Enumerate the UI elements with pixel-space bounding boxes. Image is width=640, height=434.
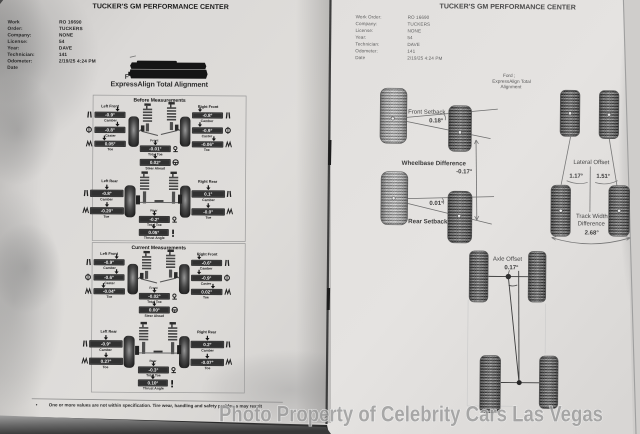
svg-text:DAVE: DAVE: [59, 45, 72, 50]
svg-text:2/19/25 4:24 PM: 2/19/25 4:24 PM: [407, 56, 442, 61]
svg-text:NONE: NONE: [407, 28, 421, 33]
svg-text:0.10°: 0.10°: [147, 381, 158, 386]
svg-text:TUCKER'S GM PERFORMANCE CENTER: TUCKER'S GM PERFORMANCE CENTER: [440, 3, 576, 11]
svg-text:Toe: Toe: [107, 295, 113, 299]
svg-text:2.68°: 2.68°: [585, 230, 600, 236]
svg-text:Year:: Year:: [7, 45, 20, 50]
svg-text:DAVE: DAVE: [407, 42, 420, 47]
svg-text:-0.07°: -0.07°: [201, 360, 214, 365]
svg-text:Company:: Company:: [7, 32, 31, 37]
svg-text:Toe: Toe: [205, 216, 211, 220]
svg-text:Caster: Caster: [105, 134, 116, 138]
svg-text:Photo Property of Celebrity Ca: Photo Property of Celebrity Cars Las Veg…: [219, 402, 603, 427]
svg-text:Before Measurements: Before Measurements: [133, 98, 185, 104]
svg-text:Left Rear: Left Rear: [101, 179, 118, 183]
svg-text:-0.6°: -0.6°: [104, 275, 114, 280]
svg-text:RO 16690: RO 16690: [59, 19, 82, 24]
svg-text:-0.6°: -0.6°: [202, 260, 212, 265]
svg-text:Wheelbase Difference: Wheelbase Difference: [402, 160, 467, 168]
svg-text:Toe: Toe: [204, 148, 210, 152]
svg-text:-0.9°: -0.9°: [105, 112, 115, 117]
svg-text:0.05°: 0.05°: [148, 230, 159, 235]
svg-text:Toe: Toe: [103, 365, 109, 369]
svg-text:-0.04°: -0.04°: [103, 289, 116, 294]
svg-text:Rear Setback: Rear Setback: [408, 218, 448, 225]
svg-text:Left Rear: Left Rear: [100, 330, 117, 334]
svg-text:54: 54: [59, 39, 65, 44]
svg-text:54: 54: [407, 35, 413, 40]
svg-text:License:: License:: [7, 39, 28, 44]
svg-text:Toe: Toe: [205, 366, 211, 370]
svg-text:Thrust Angle: Thrust Angle: [144, 236, 165, 240]
svg-text:0.27°: 0.27°: [101, 359, 112, 364]
svg-text:Toe: Toe: [107, 147, 113, 151]
svg-text:Company:: Company:: [356, 21, 378, 26]
svg-text:Work Order:: Work Order:: [356, 14, 382, 19]
svg-text:Camber: Camber: [201, 349, 214, 353]
svg-text:Steer Ahead: Steer Ahead: [144, 314, 164, 318]
svg-text:TUCKERS: TUCKERS: [59, 26, 83, 31]
svg-text:Left Front: Left Front: [101, 104, 119, 108]
svg-text:Camber: Camber: [103, 266, 116, 270]
svg-text:Current Measurements: Current Measurements: [131, 245, 186, 251]
svg-text:-0.02°: -0.02°: [148, 294, 161, 299]
svg-text:Camber: Camber: [100, 197, 113, 201]
svg-text:-0.8°: -0.8°: [105, 127, 115, 132]
svg-text:0.18°: 0.18°: [429, 118, 444, 124]
svg-text:Front Setback: Front Setback: [408, 110, 446, 116]
svg-text:Toe: Toe: [203, 295, 209, 299]
svg-text:-0.20°: -0.20°: [101, 208, 114, 213]
svg-text:TUCKER'S GM PERFORMANCE CENTER: TUCKER'S GM PERFORMANCE CENTER: [93, 3, 229, 11]
svg-text:Order:: Order:: [8, 26, 24, 31]
svg-text:Camber: Camber: [99, 348, 112, 352]
svg-text:Lateral Offset: Lateral Offset: [573, 160, 609, 166]
svg-text:Difference: Difference: [578, 221, 606, 227]
svg-text:Technician:: Technician:: [7, 52, 35, 57]
svg-text:Camber: Camber: [201, 119, 214, 123]
svg-text:Right Rear: Right Rear: [198, 180, 218, 184]
svg-text:Date: Date: [7, 65, 18, 70]
svg-text:Alignment: Alignment: [501, 84, 523, 89]
svg-text:Left Front: Left Front: [100, 252, 118, 256]
svg-text:0.02°: 0.02°: [150, 160, 161, 165]
svg-text:Caster: Caster: [201, 282, 212, 286]
svg-text:Work: Work: [8, 19, 21, 24]
svg-text:0.17°: 0.17°: [504, 265, 519, 271]
svg-text:141: 141: [407, 49, 415, 54]
svg-text:-0.9°: -0.9°: [203, 128, 213, 133]
svg-text:Camber: Camber: [104, 118, 117, 122]
svg-text:-0.17°: -0.17°: [456, 169, 473, 175]
svg-text:-0.3°: -0.3°: [149, 368, 159, 373]
svg-text:Track Width: Track Width: [576, 214, 608, 220]
svg-text:0.05°: 0.05°: [105, 141, 116, 146]
svg-text:Odometer:: Odometer:: [7, 58, 32, 63]
svg-text:0.02°: 0.02°: [201, 289, 212, 294]
svg-text:ExpressAlign Total: ExpressAlign Total: [492, 79, 531, 84]
svg-text:-0.2°: -0.2°: [149, 217, 159, 222]
svg-text:0.2°: 0.2°: [203, 342, 211, 347]
svg-text:Year:: Year:: [355, 35, 366, 40]
svg-text:2/19/25 4:24 PM: 2/19/25 4:24 PM: [59, 58, 96, 63]
svg-text:License:: License:: [355, 28, 373, 33]
svg-text:Camber: Camber: [202, 198, 215, 202]
svg-text:-0.8°: -0.8°: [102, 191, 112, 196]
svg-text:-0.9°: -0.9°: [202, 276, 212, 281]
svg-text:ExpressAlign Total Alignment: ExpressAlign Total Alignment: [111, 80, 209, 89]
svg-text:-0.9°: -0.9°: [104, 260, 114, 265]
svg-text:-0.0°: -0.0°: [203, 209, 213, 214]
svg-text:Odometer:: Odometer:: [355, 48, 378, 53]
svg-text:Date: Date: [355, 55, 365, 60]
svg-text:1.17°: 1.17°: [569, 174, 583, 180]
svg-text:Caster: Caster: [202, 134, 213, 138]
svg-text:Right Front: Right Front: [198, 105, 219, 109]
svg-text:Steer Ahead: Steer Ahead: [145, 166, 165, 170]
svg-text:0.00°: 0.00°: [149, 308, 160, 313]
svg-text:-0.8°: -0.8°: [203, 113, 213, 118]
svg-text:Ford ;: Ford ;: [503, 73, 515, 78]
svg-text:Right Front: Right Front: [197, 252, 218, 256]
svg-text:Toe: Toe: [103, 215, 109, 219]
svg-text:-0.9°: -0.9°: [101, 341, 111, 346]
svg-text:Axle Offset: Axle Offset: [493, 257, 523, 263]
svg-text:0.01°: 0.01°: [429, 201, 444, 207]
svg-text:TUCKERS: TUCKERS: [408, 22, 431, 27]
svg-text:Technician:: Technician:: [355, 42, 379, 47]
svg-text:RO 16690: RO 16690: [408, 15, 430, 20]
svg-text:Camber: Camber: [200, 267, 213, 271]
svg-text:-0.06°: -0.06°: [201, 142, 214, 147]
svg-text:NONE: NONE: [59, 32, 73, 37]
svg-text:Caster: Caster: [104, 281, 115, 285]
svg-text:0.1°: 0.1°: [204, 192, 212, 197]
svg-text:1.51°: 1.51°: [596, 174, 610, 180]
svg-text:Thrust Angle: Thrust Angle: [143, 386, 164, 390]
svg-text:-0.01°: -0.01°: [149, 146, 162, 151]
svg-text:141: 141: [59, 52, 68, 57]
svg-text:Right Rear: Right Rear: [197, 330, 217, 334]
